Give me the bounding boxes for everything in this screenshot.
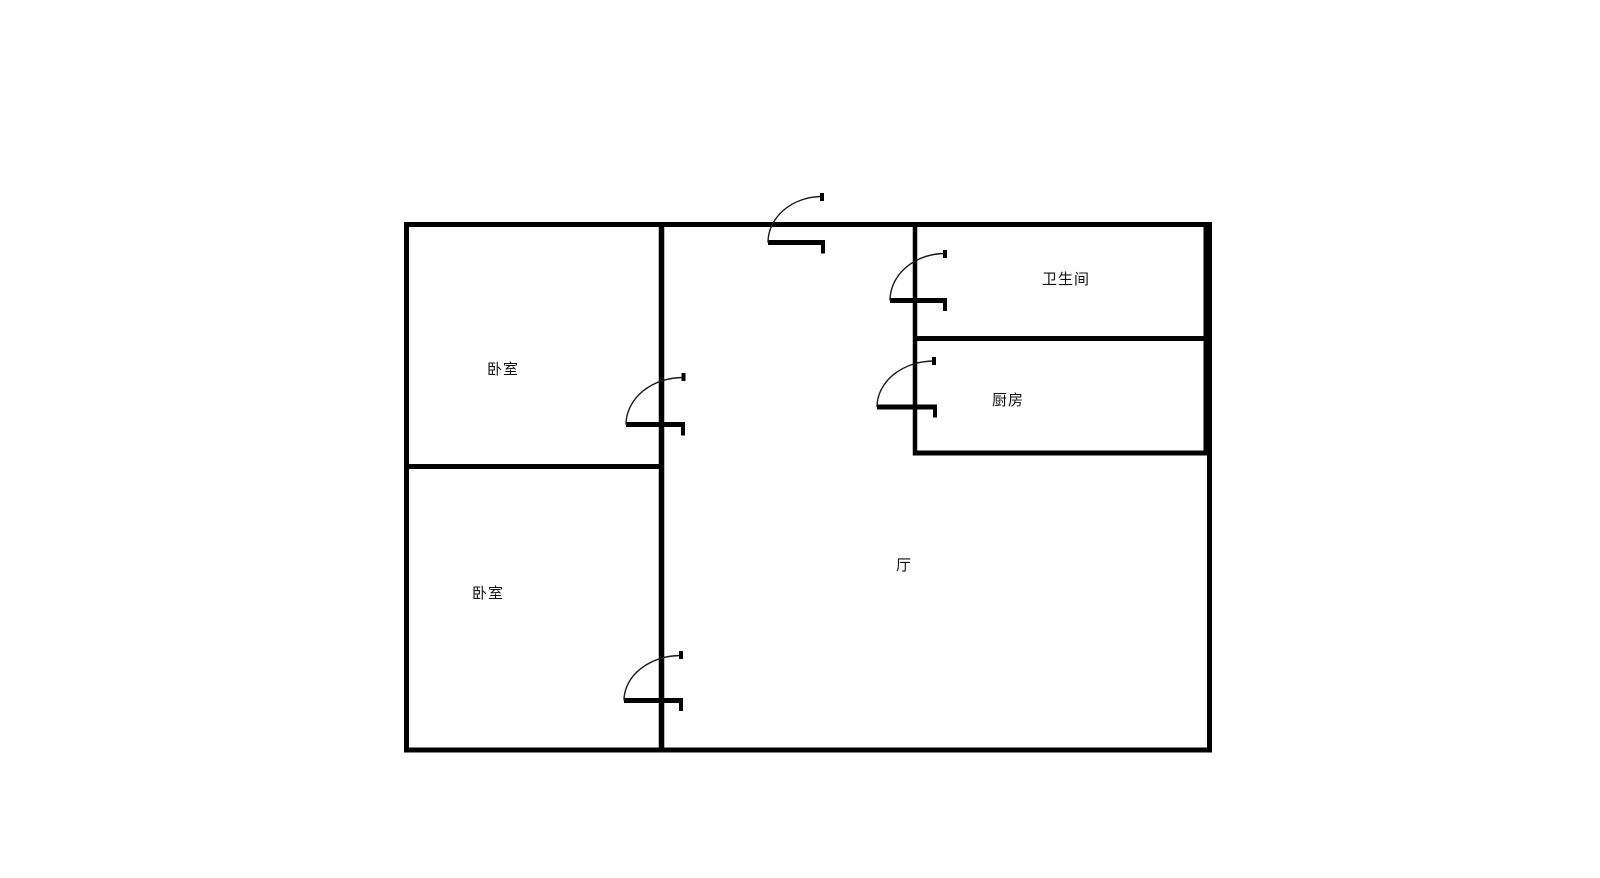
bedroom-bottom-door-swing-arc <box>624 656 681 701</box>
room-label-bathroom: 卫生间 <box>1042 272 1090 287</box>
room-label-bedroom-bottom: 卧室 <box>472 586 504 601</box>
room-label-bedroom-top: 卧室 <box>487 362 519 377</box>
kitchen-door-swing-arc <box>877 361 934 407</box>
bedroom-top-door <box>626 373 685 436</box>
kitchen-door <box>877 357 937 418</box>
floor-plan-canvas: 卧室 卧室 卫生间 厨房 厅 <box>0 0 1600 878</box>
bathroom-door <box>890 250 947 311</box>
floor-plan-drawing <box>0 0 1600 878</box>
bathroom-door-swing-arc <box>890 254 945 301</box>
bedroom-bottom-door <box>624 651 683 711</box>
bedroom-top-door-swing-arc <box>626 378 683 425</box>
entry-door-swing-arc <box>768 197 822 243</box>
room-label-kitchen: 厨房 <box>992 393 1024 408</box>
outer-wall <box>407 225 1210 751</box>
room-label-hall: 厅 <box>896 558 912 573</box>
